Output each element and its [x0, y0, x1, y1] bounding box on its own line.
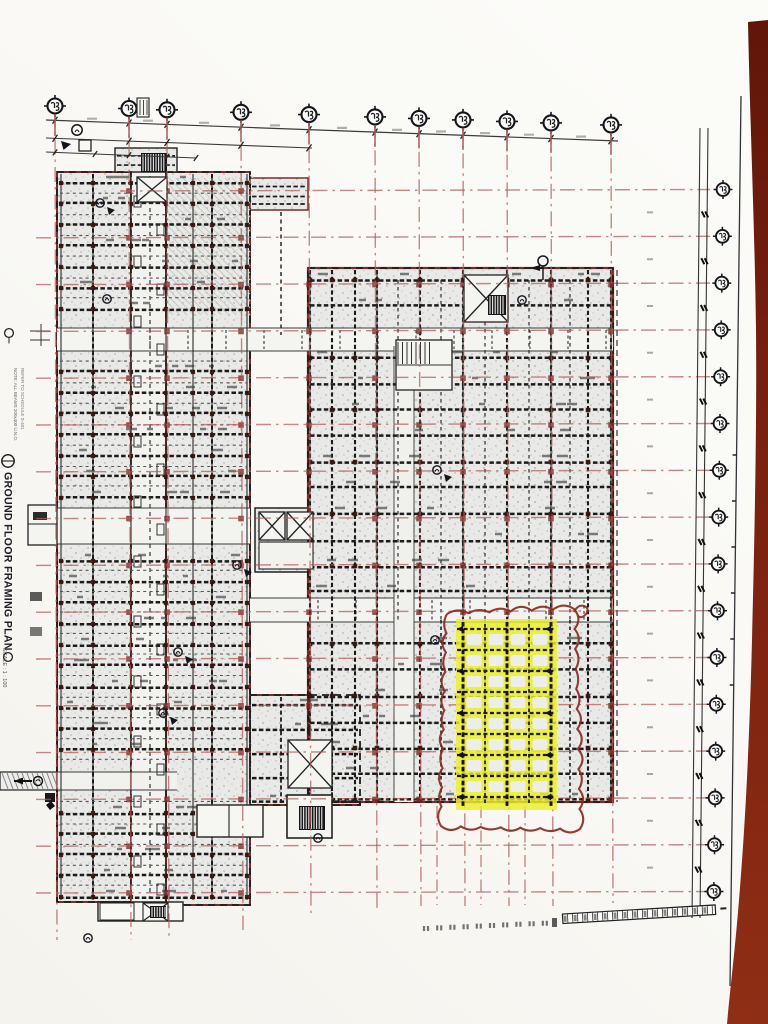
svg-text:REFER TO SCHEDULE S-401: REFER TO SCHEDULE S-401 [20, 368, 25, 430]
svg-text:NOTE: ALL BEAMS 200x400 U.N.O.: NOTE: ALL BEAMS 200x400 U.N.O. [13, 368, 18, 441]
svg-text:GROUND FLOOR FRAMING PLAN: GROUND FLOOR FRAMING PLAN [2, 472, 14, 651]
svg-text:SCALE : 1 : 100: SCALE : 1 : 100 [1, 648, 7, 687]
